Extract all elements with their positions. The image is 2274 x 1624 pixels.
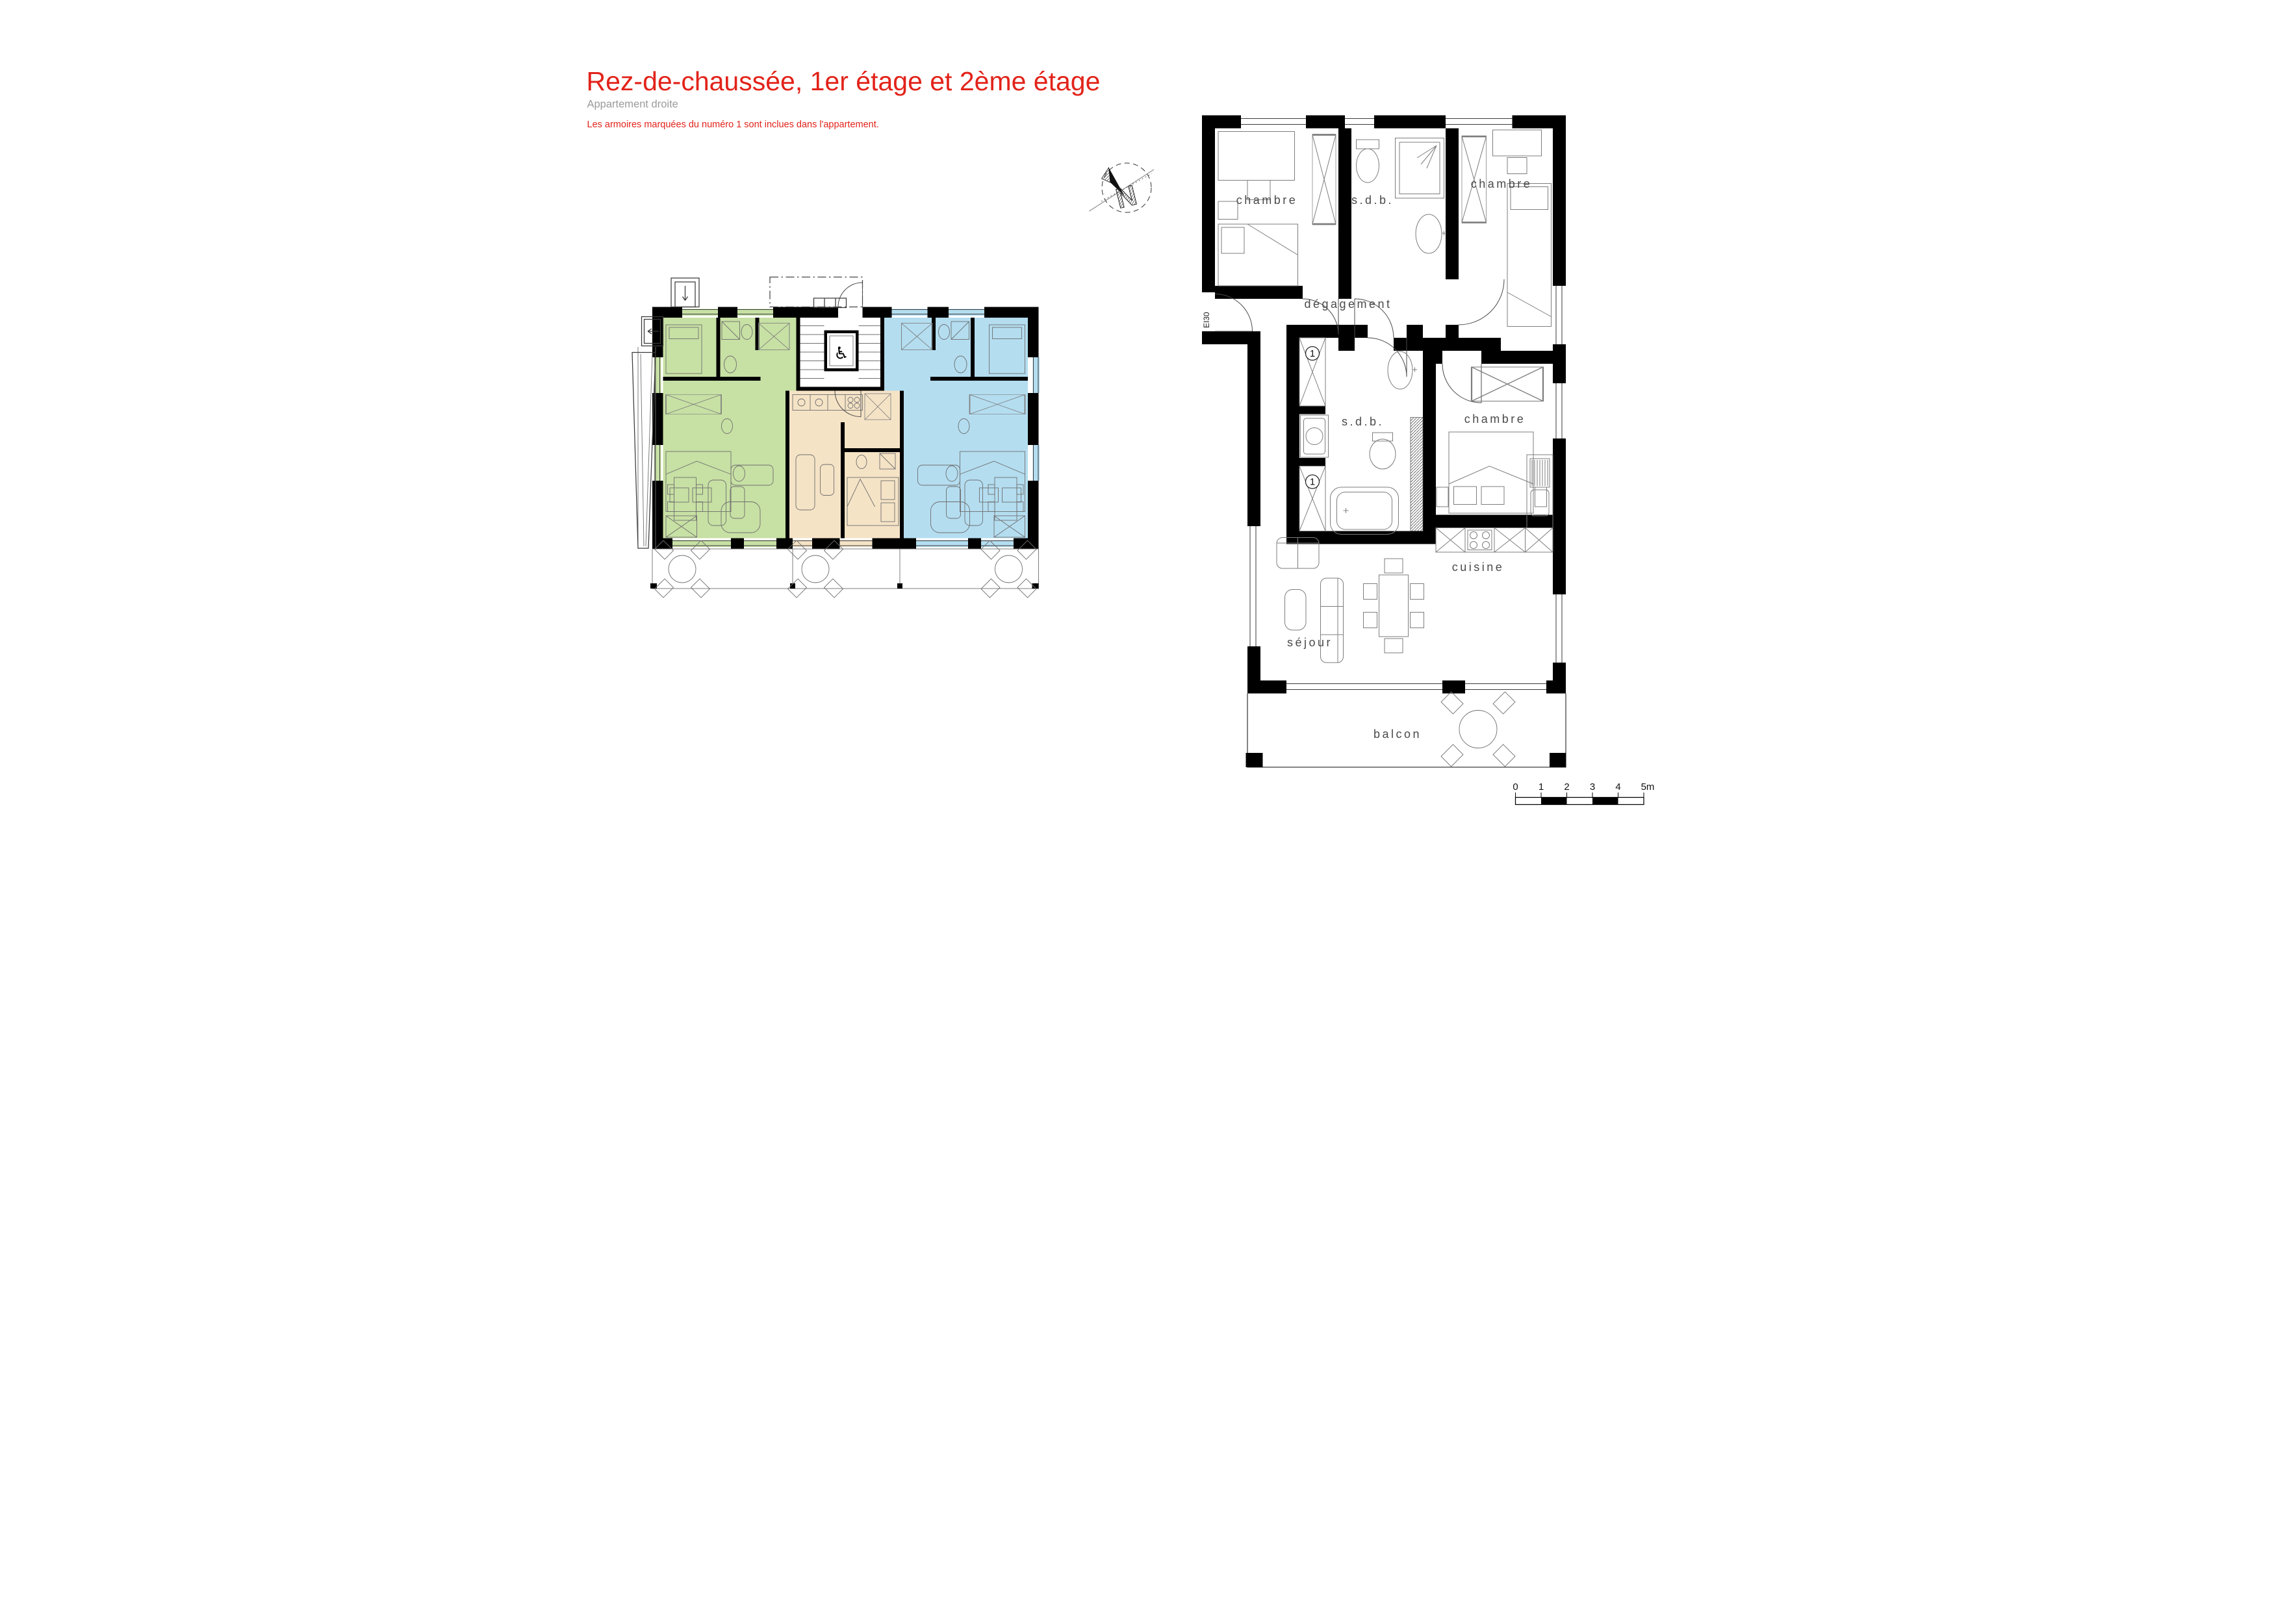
- room-label: balcon: [1373, 728, 1422, 741]
- door-fire-rating-label: EI30: [1202, 312, 1211, 328]
- svg-text:1: 1: [1310, 477, 1315, 488]
- scale-tick: 0: [1513, 781, 1518, 793]
- floor-plan-sheet: Rez-de-chaussée, 1er étage et 2ème étage…: [568, 0, 1705, 812]
- room-label-degagement: dégagement: [1304, 298, 1392, 311]
- included-wardrobe-marker: 1: [1306, 347, 1320, 361]
- svg-text:1: 1: [1310, 348, 1315, 359]
- page-subtitle: Appartement droite: [587, 99, 678, 110]
- room-label: chambre: [1236, 194, 1298, 207]
- room-label: chambre: [1471, 177, 1533, 190]
- room-label: s.d.b.: [1351, 194, 1394, 207]
- scale-tick: 2: [1564, 781, 1569, 793]
- wheelchair-icon: ♿: [834, 344, 849, 363]
- room-label: s.d.b.: [1342, 415, 1384, 428]
- scale-end-label: 5m: [1641, 781, 1655, 793]
- page-title: Rez-de-chaussée, 1er étage et 2ème étage: [587, 66, 1101, 96]
- room-label: séjour: [1287, 636, 1333, 649]
- hatched-partition: [1411, 418, 1423, 531]
- scale-tick: 1: [1539, 781, 1544, 793]
- scale-tick: 4: [1615, 781, 1620, 793]
- scale-tick: 3: [1590, 781, 1595, 793]
- room-label: cuisine: [1452, 561, 1505, 574]
- included-wardrobe-marker: 1: [1306, 475, 1320, 488]
- room-label: chambre: [1464, 412, 1526, 425]
- apartment-left-green-area: [663, 318, 800, 539]
- wardrobe-note: Les armoires marquées du numéro 1 sont i…: [587, 120, 879, 130]
